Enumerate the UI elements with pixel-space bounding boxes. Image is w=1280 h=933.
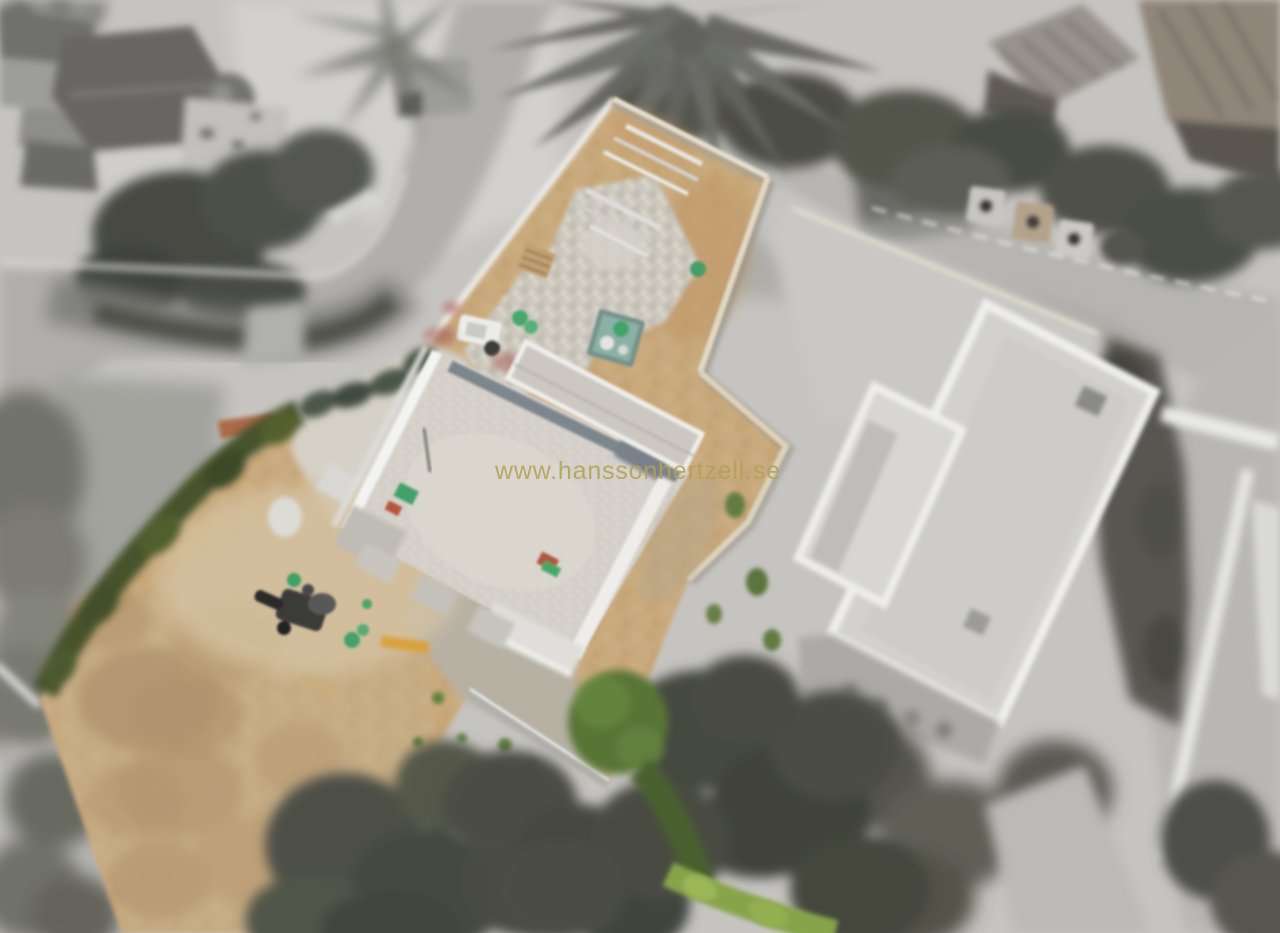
- svg-text:www.hanssonhertzell.se: www.hanssonhertzell.se: [494, 457, 781, 485]
